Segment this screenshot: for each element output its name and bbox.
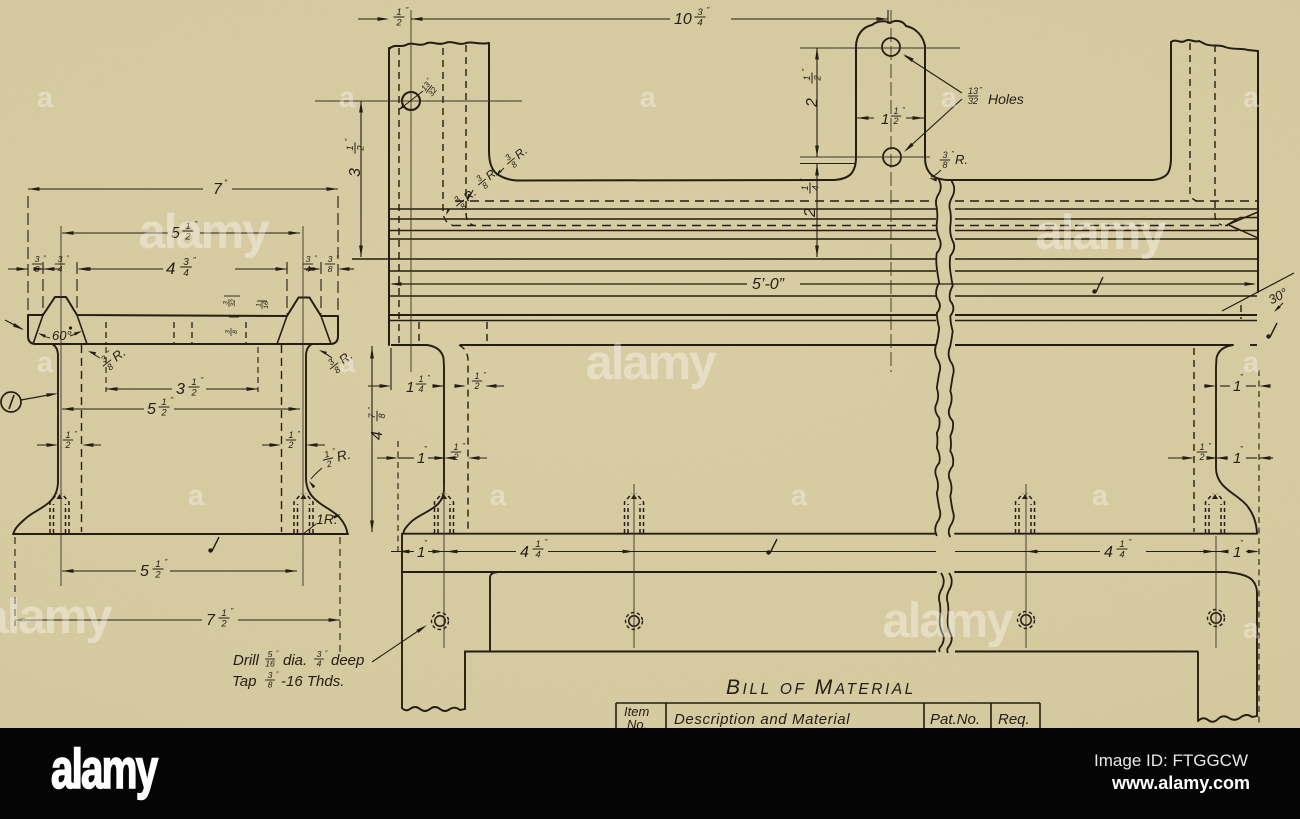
svg-text:”: ”	[424, 539, 427, 548]
svg-text:8: 8	[35, 264, 40, 274]
svg-text:5’-0”: 5’-0”	[752, 276, 785, 293]
svg-text:1: 1	[535, 539, 540, 550]
svg-text:alamy: alamy	[883, 594, 1014, 648]
svg-text:2: 2	[813, 75, 824, 82]
svg-text:Holes: Holes	[988, 91, 1024, 107]
svg-text:4: 4	[520, 544, 529, 561]
svg-text:Pat.No.: Pat.No.	[930, 711, 980, 728]
svg-text:2: 2	[395, 18, 402, 29]
svg-text:-16 Thds.: -16 Thds.	[281, 673, 344, 690]
svg-text:2: 2	[473, 381, 479, 391]
svg-text:1: 1	[406, 379, 414, 396]
svg-text:4: 4	[306, 264, 311, 274]
svg-text:”: ”	[1240, 539, 1243, 548]
svg-text:dia.: dia.	[283, 652, 307, 669]
svg-text:”: ”	[1129, 538, 1132, 547]
svg-text:Req.: Req.	[998, 711, 1030, 728]
svg-text:13: 13	[968, 86, 978, 96]
svg-text:1: 1	[474, 371, 479, 381]
svg-text:1: 1	[256, 303, 263, 307]
svg-text:8: 8	[377, 413, 387, 418]
svg-text:4: 4	[811, 185, 822, 190]
svg-text:4: 4	[535, 550, 540, 561]
svg-text:1: 1	[881, 111, 889, 128]
svg-text:3: 3	[225, 330, 232, 334]
svg-text:Description and Material: Description and Material	[674, 711, 850, 728]
svg-text:a: a	[1243, 613, 1260, 645]
svg-text:”: ”	[801, 69, 810, 72]
svg-text:1: 1	[396, 7, 401, 18]
svg-text:”: ”	[1240, 445, 1243, 454]
svg-text:3: 3	[328, 254, 333, 264]
svg-text:3: 3	[176, 381, 185, 398]
svg-text:a: a	[791, 480, 808, 512]
svg-text:”: ”	[707, 6, 710, 15]
svg-text:10: 10	[674, 11, 692, 28]
svg-text:32: 32	[968, 96, 978, 106]
svg-text:4: 4	[183, 268, 189, 279]
svg-text:1: 1	[418, 374, 423, 384]
svg-text:alamy: alamy	[1036, 206, 1167, 260]
svg-text:1: 1	[800, 185, 811, 190]
svg-text:4: 4	[369, 431, 386, 440]
svg-text:”: ”	[171, 396, 174, 405]
svg-text:8: 8	[232, 330, 239, 334]
svg-text:4: 4	[418, 384, 423, 394]
svg-text:4: 4	[317, 659, 322, 669]
svg-text:”: ”	[231, 607, 234, 616]
svg-text:1: 1	[221, 608, 226, 619]
svg-text:”: ”	[424, 445, 427, 454]
svg-text:2: 2	[287, 440, 293, 450]
svg-text:16: 16	[265, 659, 275, 669]
svg-text:1: 1	[288, 430, 293, 440]
svg-text:2: 2	[802, 208, 819, 218]
svg-text:5: 5	[140, 563, 149, 580]
svg-text:1: 1	[1199, 442, 1204, 452]
svg-text:”: ”	[799, 179, 808, 182]
svg-text:1: 1	[893, 106, 898, 116]
svg-text:32: 32	[230, 299, 237, 307]
svg-text:Tap: Tap	[232, 673, 256, 690]
svg-text:1: 1	[191, 377, 196, 388]
svg-text:a: a	[941, 82, 958, 114]
svg-text:2: 2	[190, 388, 197, 399]
svg-text:5: 5	[147, 401, 156, 418]
svg-text:a: a	[339, 347, 356, 379]
svg-text:8: 8	[268, 680, 273, 690]
svg-text:2: 2	[452, 452, 458, 462]
svg-text:3: 3	[347, 168, 364, 177]
svg-text:16: 16	[263, 301, 270, 309]
svg-text:a: a	[37, 347, 54, 379]
svg-text:deep: deep	[331, 652, 364, 669]
svg-text:7: 7	[213, 181, 223, 198]
svg-text:a: a	[1243, 82, 1260, 114]
svg-text:2: 2	[160, 408, 167, 419]
svg-text:2: 2	[892, 116, 898, 126]
svg-text:1: 1	[1119, 539, 1124, 550]
svg-text:3: 3	[306, 254, 311, 264]
svg-text:1: 1	[802, 75, 813, 80]
svg-text:2: 2	[154, 570, 161, 581]
svg-text:60°: 60°	[52, 328, 72, 343]
svg-text:4: 4	[166, 259, 175, 278]
svg-text:1: 1	[345, 145, 356, 150]
svg-text:a: a	[490, 480, 507, 512]
svg-text:1: 1	[65, 430, 70, 440]
svg-text:2: 2	[64, 440, 70, 450]
svg-text:3: 3	[58, 254, 63, 264]
svg-text:a: a	[37, 82, 54, 114]
svg-text:alamy: alamy	[0, 590, 112, 644]
svg-text:1: 1	[161, 397, 166, 408]
svg-text:3: 3	[697, 7, 703, 18]
svg-text:”: ”	[344, 139, 353, 142]
svg-text:4: 4	[697, 18, 702, 29]
svg-text:”: ”	[165, 558, 168, 567]
svg-text:alamy: alamy	[586, 336, 717, 390]
svg-text:a: a	[339, 82, 356, 114]
svg-text:a: a	[1092, 480, 1109, 512]
svg-text:a: a	[1243, 347, 1260, 379]
svg-text:2: 2	[356, 145, 367, 152]
svg-text:4: 4	[58, 264, 63, 274]
svg-text:2: 2	[1198, 452, 1204, 462]
svg-text:2: 2	[220, 619, 227, 630]
svg-text:”: ”	[545, 538, 548, 547]
svg-text:8: 8	[942, 160, 947, 170]
svg-text:alamy: alamy	[139, 205, 270, 259]
svg-text:”: ”	[406, 6, 409, 15]
svg-text:R.: R.	[955, 152, 968, 167]
svg-text:1: 1	[155, 559, 160, 570]
svg-text:1R.: 1R.	[316, 511, 338, 527]
svg-text:4: 4	[1119, 550, 1124, 561]
svg-text:1: 1	[453, 442, 458, 452]
svg-text:8: 8	[328, 264, 333, 274]
svg-text:3: 3	[223, 301, 230, 305]
svg-text:7: 7	[206, 612, 216, 629]
svg-text:”: ”	[201, 376, 204, 385]
svg-text:3: 3	[942, 150, 947, 160]
svg-text:a: a	[188, 480, 205, 512]
svg-text:Drill: Drill	[233, 652, 259, 669]
svg-text:2: 2	[804, 98, 821, 108]
svg-text:3: 3	[35, 254, 40, 264]
svg-text:4: 4	[1104, 544, 1113, 561]
svg-text:a: a	[640, 82, 657, 114]
